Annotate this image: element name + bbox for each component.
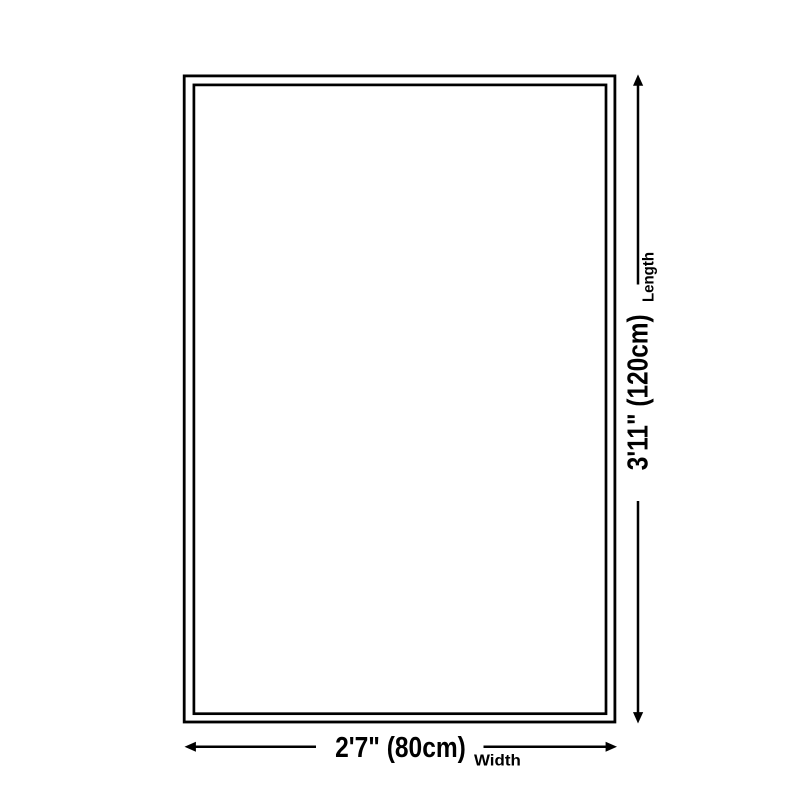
svg-text:Length: Length [641, 252, 658, 302]
svg-text:2'7" (80cm): 2'7" (80cm) [335, 732, 466, 764]
svg-text:Width: Width [474, 753, 521, 770]
svg-text:3'11" (120cm): 3'11" (120cm) [623, 314, 655, 470]
